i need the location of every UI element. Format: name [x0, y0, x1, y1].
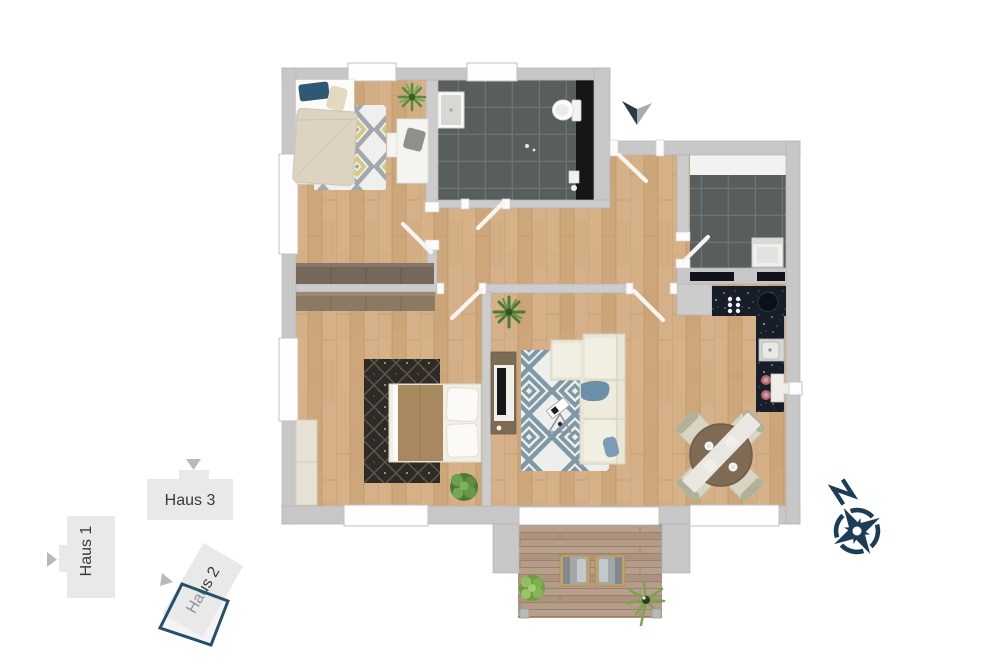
svg-text:Haus 3: Haus 3: [165, 492, 216, 509]
svg-text:Haus 1: Haus 1: [78, 526, 95, 577]
